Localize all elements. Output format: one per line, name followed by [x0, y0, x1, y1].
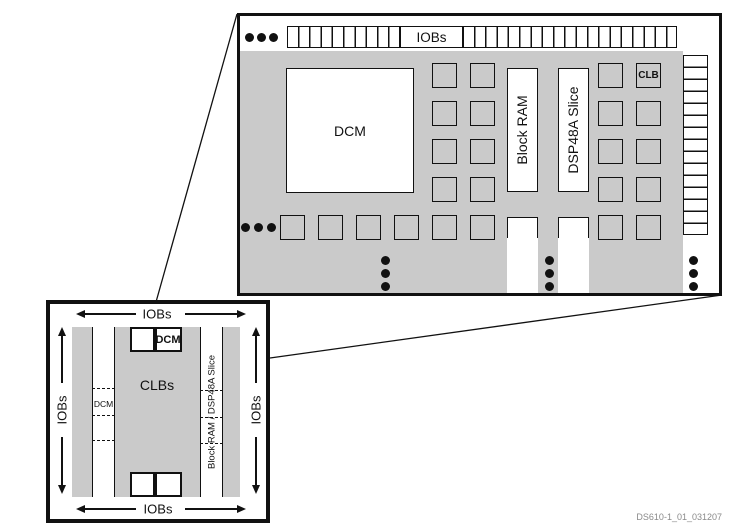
iobs-label: IOBs: [416, 30, 446, 45]
ellipsis-dot-icon: [257, 33, 266, 42]
dashed-divider: [92, 440, 115, 441]
overview-iobs-right-label: IOBs: [249, 396, 264, 425]
iob-cells-right: [683, 55, 708, 235]
overview-iobs-top-label: IOBs: [143, 307, 172, 322]
block-ram-bracket: [507, 217, 538, 238]
ellipsis-dot-icon: [269, 33, 278, 42]
clb-square: [470, 139, 495, 164]
overview-bottom-square: [130, 472, 155, 497]
iob-cells-top-left: [287, 26, 400, 48]
clb-block: CLB: [636, 63, 661, 88]
dashed-divider: [92, 388, 115, 389]
clb-square: [394, 215, 419, 240]
ellipsis-dot-icon: [545, 282, 554, 291]
dsp48a-bracket: [558, 217, 589, 238]
ellipsis-dot-icon: [267, 223, 276, 232]
overview-dcm-top-square: DCM: [155, 327, 182, 352]
dcm-block: DCM: [286, 68, 414, 193]
dcm-label: DCM: [334, 123, 366, 139]
ellipsis-dot-icon: [254, 223, 263, 232]
clb-square: [598, 63, 623, 88]
ellipsis-dot-icon: [381, 282, 390, 291]
ellipsis-dot-icon: [381, 256, 390, 265]
arrow-line: [185, 508, 237, 510]
clb-square: [636, 139, 661, 164]
clb-square: [636, 101, 661, 126]
ellipsis-dot-icon: [689, 282, 698, 291]
clb-square: [432, 101, 457, 126]
overview-iobs-left-label: IOBs: [55, 396, 70, 425]
clb-square: [356, 215, 381, 240]
ellipsis-dot-icon: [689, 256, 698, 265]
clb-square: [470, 101, 495, 126]
dashed-divider: [92, 415, 115, 416]
ellipsis-dot-icon: [241, 223, 250, 232]
clb-square: [598, 101, 623, 126]
ellipsis-dot-icon: [689, 269, 698, 278]
overview-clbs-label: CLBs: [140, 377, 174, 393]
arrow-line: [61, 437, 63, 485]
overview-dcm-column: [92, 327, 115, 497]
arrow-line: [61, 335, 63, 383]
arrow-line: [84, 313, 136, 315]
clb-square: [280, 215, 305, 240]
clb-square: [432, 215, 457, 240]
clb-square: [598, 215, 623, 240]
arrowhead-down-icon: [58, 485, 66, 494]
overview-bram-dsp-label: Block RAM / DSP48A Slice: [206, 355, 217, 469]
arrow-line: [185, 313, 237, 315]
clb-square: [598, 177, 623, 202]
iob-cells-top-right: [463, 26, 677, 48]
block-ram-label: Block RAM: [514, 95, 530, 164]
ellipsis-dot-icon: [545, 269, 554, 278]
overview-iobs-bottom-label: IOBs: [144, 502, 173, 517]
chip-overview: DCM Block RAM / DSP48A Slice DCM CLBs IO…: [46, 300, 270, 523]
arrowhead-right-icon: [237, 310, 246, 318]
document-id: DS610-1_01_031207: [560, 512, 722, 522]
arrow-line: [84, 508, 136, 510]
arrow-line: [255, 437, 257, 485]
clb-square: [470, 177, 495, 202]
iobs-label-box: IOBs: [400, 26, 463, 48]
arrow-line: [255, 335, 257, 383]
ellipsis-dot-icon: [381, 269, 390, 278]
overview-top-square: [130, 327, 155, 352]
ellipsis-dot-icon: [245, 33, 254, 42]
magnified-fabric-view: IOBs DCM Block RAM DSP48A Slice CLB: [237, 13, 722, 296]
clb-square: [636, 215, 661, 240]
arrowhead-down-icon: [252, 485, 260, 494]
fpga-architecture-figure: IOBs DCM Block RAM DSP48A Slice CLB: [0, 0, 731, 526]
clb-square: [432, 177, 457, 202]
overview-dcm-top-label: DCM: [155, 334, 180, 346]
overview-bottom-square: [155, 472, 182, 497]
clb-square: [470, 63, 495, 88]
dsp48a-label: DSP48A Slice: [565, 86, 581, 173]
clb-square: [432, 63, 457, 88]
clb-square: [318, 215, 343, 240]
clb-square: [432, 139, 457, 164]
overview-dcm-side-label: DCM: [94, 399, 113, 409]
clb-label: CLB: [638, 70, 659, 81]
clb-square: [598, 139, 623, 164]
clb-square: [636, 177, 661, 202]
clb-square: [470, 215, 495, 240]
ellipsis-dot-icon: [545, 256, 554, 265]
arrowhead-right-icon: [237, 505, 246, 513]
